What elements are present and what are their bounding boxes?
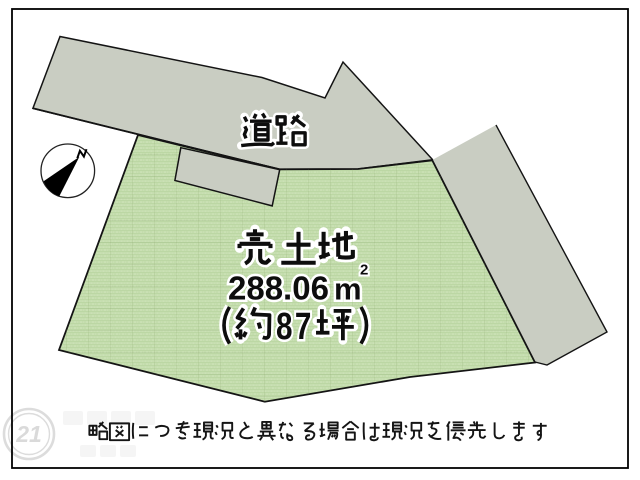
svg-text:2: 2 (360, 262, 368, 279)
svg-text:m: m (334, 272, 362, 307)
svg-text:87: 87 (276, 306, 314, 348)
svg-text:21: 21 (15, 421, 42, 447)
svg-text:288.06: 288.06 (228, 270, 329, 307)
